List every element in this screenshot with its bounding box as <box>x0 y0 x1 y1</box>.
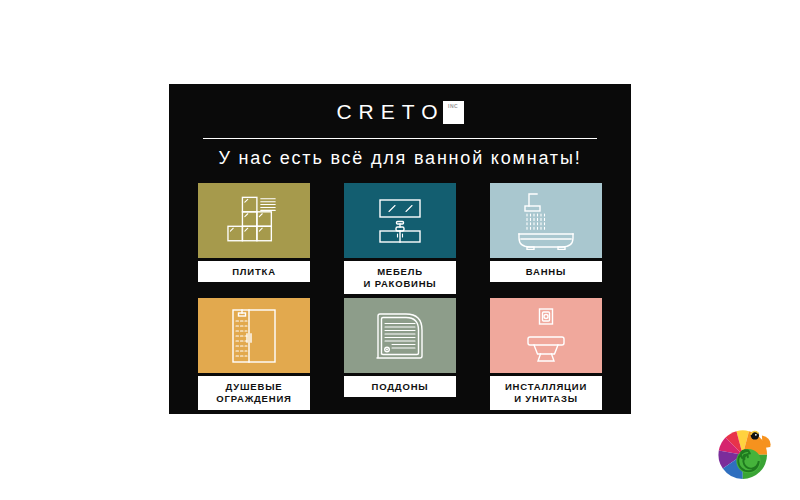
tile-swatch <box>344 183 456 258</box>
category-card-shower-enclosures[interactable]: ДУШЕВЫЕ ОГРАЖДЕНИЯ <box>198 298 310 409</box>
brand-logo-badge: INC <box>443 101 464 124</box>
category-grid: ПЛИТКА <box>198 183 602 410</box>
shower-enclosure-icon <box>231 308 277 364</box>
toilet-installation-icon <box>524 307 568 365</box>
category-card-furniture-sinks[interactable]: МЕБЕЛЬ И РАКОВИНЫ <box>344 183 456 294</box>
category-label: ИНСТАЛЛЯЦИИ И УНИТАЗЫ <box>490 376 602 409</box>
category-label: МЕБЕЛЬ И РАКОВИНЫ <box>344 261 456 294</box>
bathtub-shower-icon <box>516 192 576 250</box>
mirror-vanity-icon <box>376 198 424 244</box>
category-card-tiles[interactable]: ПЛИТКА <box>198 183 310 282</box>
brand-logo: CRETO INC <box>169 100 631 125</box>
category-card-shower-trays[interactable]: ПОДДОНЫ <box>344 298 456 397</box>
page-background: CRETO INC У нас есть всё для ванной комн… <box>0 0 800 500</box>
category-label: ПЛИТКА <box>198 261 310 282</box>
headline: У нас есть всё для ванной комнаты! <box>169 148 631 169</box>
shower-tray-icon <box>374 310 426 362</box>
brand-logo-text: CRETO <box>336 100 444 124</box>
tiles-icon <box>227 196 281 245</box>
tile-swatch <box>344 298 456 373</box>
tile-swatch <box>198 183 310 258</box>
category-card-bathtubs[interactable]: ВАННЫ <box>490 183 602 282</box>
tile-swatch <box>490 183 602 258</box>
divider-line <box>203 138 597 139</box>
brand-logo-badge-text: INC <box>448 103 458 109</box>
category-label: ВАННЫ <box>490 261 602 282</box>
tile-swatch <box>490 298 602 373</box>
category-label: ДУШЕВЫЕ ОГРАЖДЕНИЯ <box>198 376 310 409</box>
category-label: ПОДДОНЫ <box>344 376 456 397</box>
promo-card: CRETO INC У нас есть всё для ванной комн… <box>169 84 631 414</box>
category-card-installations-toilets[interactable]: ИНСТАЛЛЯЦИИ И УНИТАЗЫ <box>490 298 602 409</box>
chameleon-logo <box>712 416 776 492</box>
tile-swatch <box>198 298 310 373</box>
